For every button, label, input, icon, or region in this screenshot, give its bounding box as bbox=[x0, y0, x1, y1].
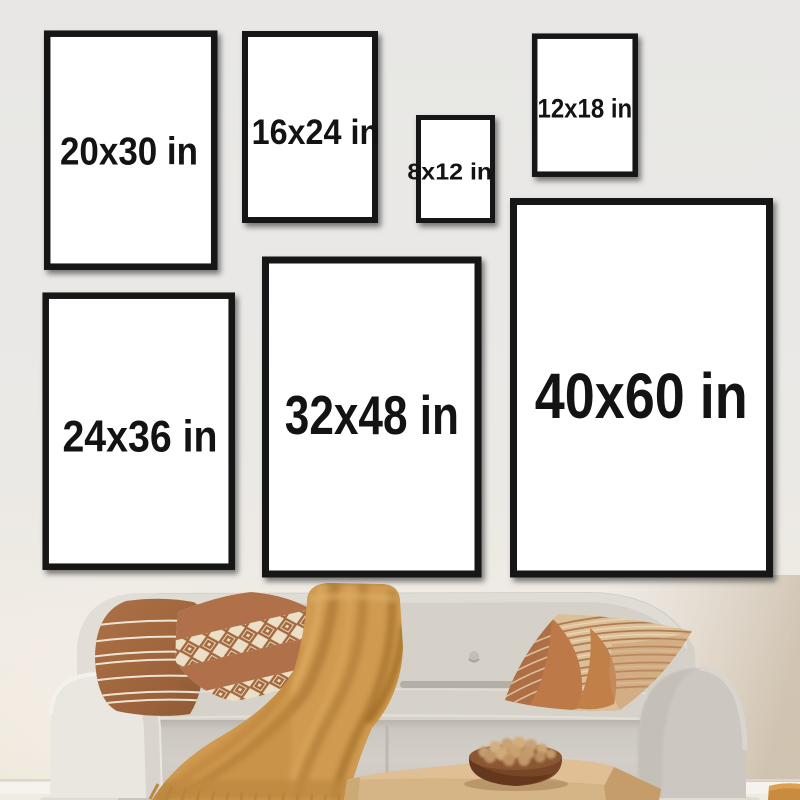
svg-text:20x30 in: 20x30 in bbox=[60, 129, 198, 173]
svg-text:12x18 in: 12x18 in bbox=[537, 94, 632, 123]
svg-text:16x24 in: 16x24 in bbox=[252, 114, 380, 152]
svg-text:8x12 in: 8x12 in bbox=[407, 160, 492, 186]
svg-text:24x36 in: 24x36 in bbox=[62, 411, 217, 461]
svg-text:40x60 in: 40x60 in bbox=[535, 360, 748, 432]
svg-text:32x48 in: 32x48 in bbox=[285, 384, 459, 446]
